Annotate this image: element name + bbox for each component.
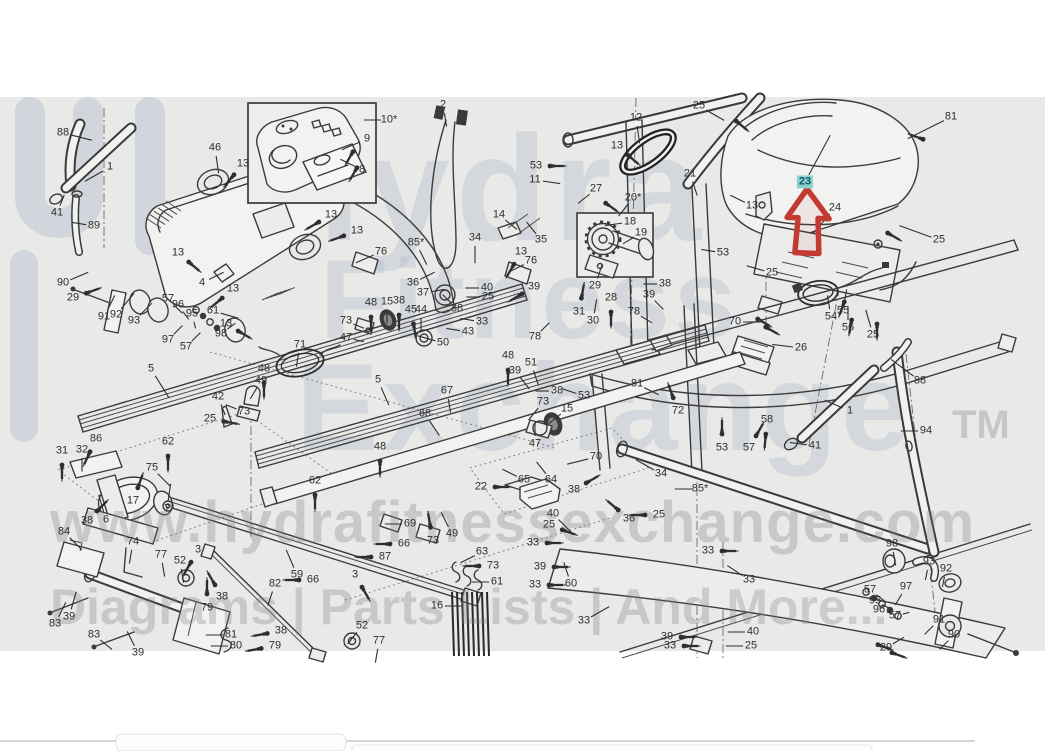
part-callout: 48 bbox=[258, 364, 270, 375]
part-callout: 24 bbox=[829, 203, 841, 214]
part-callout: 13 bbox=[227, 284, 239, 295]
part-callout: 56 bbox=[842, 323, 854, 334]
part-callout: 76 bbox=[525, 256, 537, 267]
part-callout: 13 bbox=[746, 201, 758, 212]
part-callout: 47 bbox=[529, 439, 541, 450]
part-callout: 12 bbox=[630, 113, 642, 124]
part-callout: 47 bbox=[340, 333, 352, 344]
part-callout: 13 bbox=[325, 210, 337, 221]
part-callout: 25 bbox=[653, 510, 665, 521]
part-callout: 83 bbox=[49, 619, 61, 630]
part-callout: 87 bbox=[379, 552, 391, 563]
part-callout: 39 bbox=[534, 562, 546, 573]
part-callout: 66 bbox=[398, 539, 410, 550]
part-callout: 67 bbox=[441, 386, 453, 397]
part-callout: 85* bbox=[692, 484, 709, 495]
part-callout: 68 bbox=[419, 409, 431, 420]
part-callout: 13 bbox=[611, 141, 623, 152]
part-callout: 73 bbox=[537, 397, 549, 408]
part-callout: 25 bbox=[693, 101, 705, 112]
part-callout: 46 bbox=[209, 143, 221, 154]
part-callout: 53 bbox=[578, 391, 590, 402]
part-callout: 61 bbox=[491, 577, 503, 588]
part-callout: 93 bbox=[128, 316, 140, 327]
part-callout: 3 bbox=[352, 570, 358, 581]
part-callout: 79 bbox=[269, 641, 281, 652]
part-callout: 53 bbox=[717, 248, 729, 259]
part-callout: 83 bbox=[88, 630, 100, 641]
part-callout: 80 bbox=[230, 641, 242, 652]
part-callout: 38 bbox=[275, 626, 287, 637]
part-callout: 86 bbox=[90, 434, 102, 445]
part-callout: 79 bbox=[201, 603, 213, 614]
part-callout: 57 bbox=[743, 443, 755, 454]
part-callout: 27 bbox=[590, 184, 602, 195]
part-callout: 36 bbox=[623, 514, 635, 525]
part-callout: 62 bbox=[162, 437, 174, 448]
part-callout: 9 bbox=[364, 134, 370, 145]
part-callout: 34 bbox=[469, 233, 481, 244]
part-callout: 48 bbox=[365, 298, 377, 309]
part-callout: 43 bbox=[462, 327, 474, 338]
part-callout: 98 bbox=[215, 329, 227, 340]
part-callout: 42 bbox=[212, 392, 224, 403]
part-callout: 61 bbox=[207, 306, 219, 317]
part-callout: 38 bbox=[393, 296, 405, 307]
part-callout: 3 bbox=[195, 545, 201, 556]
part-callout: 51 bbox=[525, 358, 537, 369]
part-callout: 29 bbox=[589, 281, 601, 292]
part-callout: 31 bbox=[56, 446, 68, 457]
part-callout: 92 bbox=[940, 564, 952, 575]
part-callout: 7 bbox=[164, 504, 170, 515]
part-callout: 44 bbox=[415, 305, 427, 316]
callout-layer: 8814189461313137613413611310*98290299192… bbox=[0, 0, 1045, 751]
part-callout: 13 bbox=[172, 248, 184, 259]
part-callout: 10* bbox=[381, 115, 398, 126]
part-callout: 38 bbox=[659, 279, 671, 290]
part-callout: 50 bbox=[437, 338, 449, 349]
part-callout: 37 bbox=[417, 288, 429, 299]
part-callout: 39 bbox=[63, 612, 75, 623]
part-callout: 97 bbox=[900, 582, 912, 593]
part-callout: 63 bbox=[476, 547, 488, 558]
part-callout: 39 bbox=[132, 648, 144, 659]
part-callout: 82 bbox=[269, 579, 281, 590]
part-callout: 5 bbox=[148, 364, 154, 375]
part-callout: 77 bbox=[155, 550, 167, 561]
part-callout: 25 bbox=[543, 520, 555, 531]
part-callout: 33 bbox=[527, 538, 539, 549]
part-callout: 98 bbox=[886, 539, 898, 550]
part-callout: 38 bbox=[451, 304, 463, 315]
part-callout: 69 bbox=[404, 519, 416, 530]
parts-diagram-image[interactable]: Hydra Fitness Exchange TM bbox=[0, 0, 1045, 751]
part-callout: 72 bbox=[672, 406, 684, 417]
part-callout: 29 bbox=[880, 643, 892, 654]
part-callout: 57 bbox=[889, 611, 901, 622]
part-callout: 32 bbox=[76, 445, 88, 456]
part-callout: 48 bbox=[502, 351, 514, 362]
part-callout: 66 bbox=[307, 575, 319, 586]
part-callout: 33 bbox=[664, 641, 676, 652]
part-callout: 38 bbox=[568, 485, 580, 496]
part-callout: 2 bbox=[440, 100, 446, 111]
part-callout: 34 bbox=[655, 469, 667, 480]
part-callout: 70 bbox=[590, 452, 602, 463]
part-callout: 20* bbox=[625, 193, 642, 204]
part-callout: 84 bbox=[58, 527, 70, 538]
part-callout: 60 bbox=[565, 579, 577, 590]
part-callout: 28 bbox=[605, 293, 617, 304]
part-callout: 33 bbox=[476, 317, 488, 328]
part-callout: 14 bbox=[493, 210, 505, 221]
part-callout: 13 bbox=[351, 226, 363, 237]
part-callout: 15 bbox=[381, 297, 393, 308]
part-callout: 16 bbox=[431, 601, 443, 612]
part-callout: 91 bbox=[933, 615, 945, 626]
part-callout: 85* bbox=[408, 238, 425, 249]
part-callout: 71 bbox=[294, 340, 306, 351]
part-callout: 74 bbox=[127, 537, 139, 548]
part-callout: 95 bbox=[186, 309, 198, 320]
part-callout: 35 bbox=[535, 235, 547, 246]
part-callout: 25 bbox=[867, 330, 879, 341]
part-callout: 8 bbox=[359, 165, 365, 176]
part-callout: 49 bbox=[255, 376, 267, 387]
part-callout: 30 bbox=[587, 316, 599, 327]
part-callout: 73 bbox=[340, 316, 352, 327]
part-callout: 41 bbox=[809, 441, 821, 452]
part-callout: 38 bbox=[216, 592, 228, 603]
part-callout: 52 bbox=[174, 556, 186, 567]
part-callout: 25 bbox=[766, 268, 778, 279]
part-callout: 33 bbox=[578, 616, 590, 627]
part-callout-highlighted: 23 bbox=[797, 176, 813, 189]
part-callout: 25 bbox=[482, 292, 494, 303]
part-callout: 38 bbox=[551, 386, 563, 397]
part-callout: 11 bbox=[529, 175, 540, 186]
part-callout: 25 bbox=[745, 641, 757, 652]
part-callout: 21 bbox=[684, 169, 696, 180]
part-callout: 33 bbox=[529, 580, 541, 591]
part-callout: 55 bbox=[837, 306, 849, 317]
part-callout: 96 bbox=[172, 300, 184, 311]
part-callout: 49 bbox=[446, 529, 458, 540]
part-callout: 19 bbox=[635, 228, 647, 239]
part-callout: 96 bbox=[873, 605, 885, 616]
part-callout: 5 bbox=[375, 375, 381, 386]
part-callout: 54 bbox=[825, 312, 837, 323]
part-callout: 89 bbox=[88, 221, 100, 232]
part-callout: 25 bbox=[204, 414, 216, 425]
part-callout: 29 bbox=[67, 293, 79, 304]
part-callout: 73 bbox=[238, 407, 250, 418]
part-callout: 59 bbox=[291, 570, 303, 581]
part-callout: 38 bbox=[81, 516, 93, 527]
part-callout: 97 bbox=[162, 335, 174, 346]
part-callout: 22 bbox=[475, 482, 487, 493]
part-callout: 81 bbox=[631, 379, 643, 390]
page: Hydra Fitness Exchange TM bbox=[0, 0, 1045, 751]
part-callout: 81 bbox=[945, 112, 957, 123]
part-callout: 76 bbox=[375, 247, 387, 258]
part-callout: 73 bbox=[427, 536, 439, 547]
part-callout: 75 bbox=[146, 463, 158, 474]
part-callout: 73 bbox=[487, 561, 499, 572]
part-callout: 31 bbox=[573, 307, 585, 318]
part-callout: 13 bbox=[237, 159, 249, 170]
part-callout: 25 bbox=[933, 235, 945, 246]
part-callout: 65 bbox=[518, 475, 530, 486]
part-callout: 4 bbox=[199, 278, 205, 289]
part-callout: 1 bbox=[107, 162, 113, 173]
part-callout: 57 bbox=[180, 342, 192, 353]
part-callout: 39 bbox=[643, 290, 655, 301]
part-callout: 17 bbox=[127, 496, 139, 507]
part-callout: 88 bbox=[914, 376, 926, 387]
part-callout: 58 bbox=[761, 415, 773, 426]
part-callout: 39 bbox=[509, 366, 521, 377]
part-callout: 92 bbox=[110, 310, 122, 321]
part-callout: 26 bbox=[795, 343, 807, 354]
part-callout: 52 bbox=[356, 621, 368, 632]
part-callout: 1 bbox=[847, 406, 853, 417]
part-callout: 40 bbox=[747, 627, 759, 638]
part-callout: 93 bbox=[923, 557, 935, 568]
part-callout: 90 bbox=[57, 278, 69, 289]
part-callout: 48 bbox=[374, 442, 386, 453]
part-callout: 78 bbox=[529, 332, 541, 343]
part-callout: 53 bbox=[530, 161, 542, 172]
part-callout: 33 bbox=[743, 575, 755, 586]
part-callout: 6 bbox=[103, 515, 109, 526]
part-callout: 91 bbox=[98, 312, 110, 323]
part-callout: 64 bbox=[545, 475, 557, 486]
part-callout: 90 bbox=[948, 630, 960, 641]
part-callout: 94 bbox=[920, 426, 932, 437]
part-callout: 33 bbox=[702, 546, 714, 557]
part-callout: 70 bbox=[729, 317, 741, 328]
part-callout: 78 bbox=[628, 307, 640, 318]
part-callout: 77 bbox=[373, 636, 385, 647]
part-callout: 62 bbox=[309, 476, 321, 487]
part-callout: 41 bbox=[51, 208, 63, 219]
part-callout: 15 bbox=[561, 404, 573, 415]
part-callout: 88 bbox=[57, 128, 69, 139]
part-callout: 39 bbox=[528, 282, 540, 293]
part-callout: 53 bbox=[716, 443, 728, 454]
